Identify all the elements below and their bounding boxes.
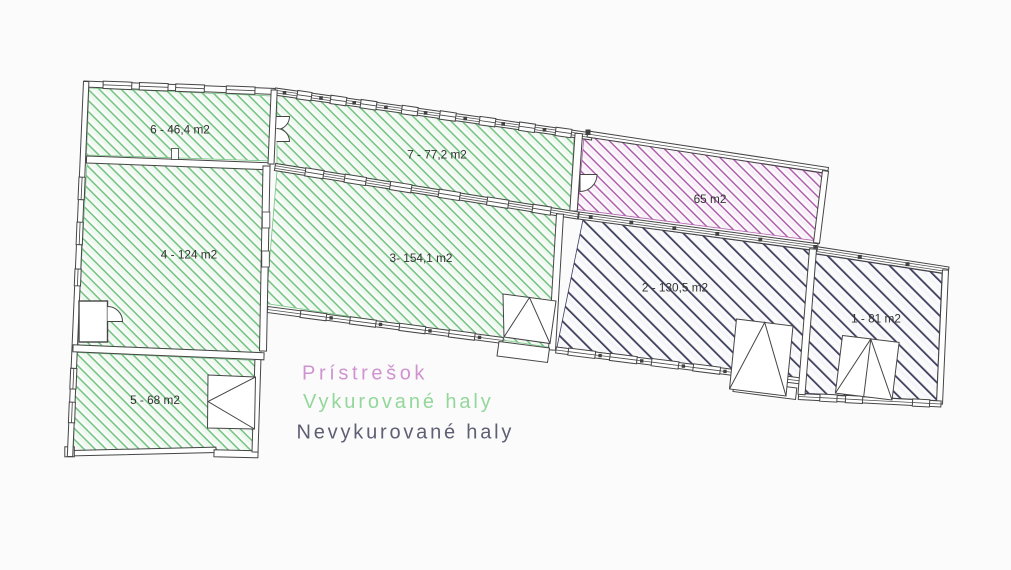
- svg-text:4 - 124 m2: 4 - 124 m2: [161, 248, 217, 262]
- svg-text:6 - 46,4 m2: 6 - 46,4 m2: [150, 123, 210, 137]
- svg-text:Vykurované haly: Vykurované haly: [303, 391, 494, 413]
- svg-text:7 - 77,2 m2: 7 - 77,2 m2: [407, 148, 467, 162]
- svg-text:5 - 68 m2: 5 - 68 m2: [130, 393, 180, 407]
- svg-text:Prístrešok: Prístrešok: [302, 363, 428, 385]
- svg-text:Nevykurované haly: Nevykurované haly: [297, 422, 515, 444]
- svg-text:65 m2: 65 m2: [694, 192, 727, 206]
- svg-text:3- 154,1 m2: 3- 154,1 m2: [390, 251, 453, 265]
- svg-text:1 - 81 m2: 1 - 81 m2: [851, 312, 901, 326]
- svg-text:2 - 130,5 m2: 2 - 130,5 m2: [642, 281, 708, 295]
